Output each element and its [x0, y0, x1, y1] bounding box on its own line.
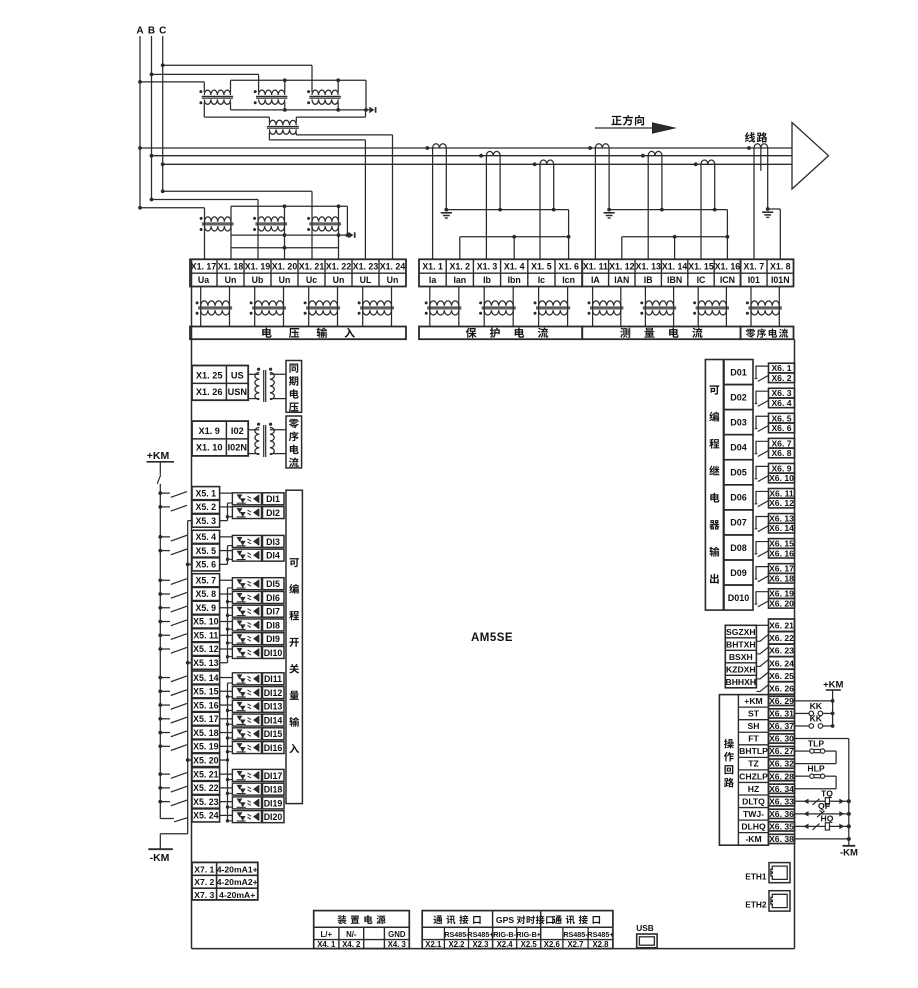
- svg-text:X1. 24: X1. 24: [380, 262, 406, 272]
- svg-text:X6. 15: X6. 15: [769, 539, 794, 549]
- svg-text:X5. 13: X5. 13: [193, 658, 219, 668]
- svg-text:X6. 38: X6. 38: [769, 834, 794, 844]
- svg-text:X6. 12: X6. 12: [769, 498, 794, 508]
- svg-text:DI9: DI9: [266, 634, 280, 644]
- svg-text:X6. 20: X6. 20: [769, 598, 794, 608]
- svg-text:FT: FT: [748, 734, 759, 744]
- svg-text:GPS: GPS: [496, 915, 514, 925]
- svg-text:X1. 5: X1. 5: [531, 262, 552, 272]
- svg-text:X7. 3: X7. 3: [194, 890, 214, 900]
- svg-text:X5. 3: X5. 3: [196, 516, 217, 526]
- svg-text:AM5SE: AM5SE: [471, 632, 513, 644]
- svg-text:X5. 15: X5. 15: [193, 687, 219, 697]
- svg-text:CHZLP: CHZLP: [739, 771, 768, 781]
- svg-text:X6. 25: X6. 25: [769, 671, 794, 681]
- svg-text:KK: KK: [810, 701, 823, 711]
- svg-text:D06: D06: [730, 493, 747, 503]
- svg-text:X1. 2: X1. 2: [450, 262, 471, 272]
- svg-text:DI1: DI1: [266, 494, 280, 504]
- svg-text:X5. 22: X5. 22: [193, 783, 219, 793]
- svg-text:X7. 2: X7. 2: [194, 877, 214, 887]
- svg-text:GND: GND: [388, 930, 406, 939]
- svg-text:DI17: DI17: [264, 771, 283, 781]
- svg-text:Ua: Ua: [198, 275, 209, 285]
- svg-text:X5. 17: X5. 17: [193, 714, 219, 724]
- svg-text:DI6: DI6: [266, 593, 280, 603]
- svg-text:DI10: DI10: [264, 648, 283, 658]
- svg-text:IA: IA: [591, 275, 600, 285]
- svg-text:X6. 28: X6. 28: [769, 771, 794, 781]
- svg-text:TZ: TZ: [748, 759, 759, 769]
- svg-text:X5. 10: X5. 10: [193, 617, 219, 627]
- svg-text:RS485-: RS485-: [563, 930, 588, 939]
- svg-text:X1. 21: X1. 21: [299, 262, 325, 272]
- svg-text:X5. 4: X5. 4: [196, 532, 217, 542]
- svg-text:X6. 8: X6. 8: [771, 448, 791, 458]
- svg-text:X6. 30: X6. 30: [769, 734, 794, 744]
- svg-text:RS485+: RS485+: [587, 930, 613, 939]
- svg-text:-KM: -KM: [745, 834, 761, 844]
- svg-text:X1. 7: X1. 7: [744, 262, 765, 272]
- svg-text:Un: Un: [279, 275, 291, 285]
- svg-text:X1. 10: X1. 10: [196, 443, 223, 453]
- svg-text:X1. 14: X1. 14: [662, 262, 688, 272]
- svg-text:-KM: -KM: [150, 852, 170, 864]
- svg-text:X1. 16: X1. 16: [715, 262, 741, 272]
- svg-text:X6. 21: X6. 21: [769, 621, 794, 631]
- svg-text:ETH1: ETH1: [745, 872, 767, 882]
- svg-text:X6. 4: X6. 4: [771, 398, 791, 408]
- svg-text:Uc: Uc: [306, 275, 317, 285]
- svg-text:+KM: +KM: [823, 680, 843, 691]
- svg-text:IC: IC: [697, 275, 706, 285]
- svg-text:D04: D04: [730, 443, 747, 453]
- svg-text:X6. 7: X6. 7: [771, 438, 791, 448]
- svg-text:I02: I02: [231, 426, 244, 436]
- svg-text:X1. 15: X1. 15: [688, 262, 714, 272]
- svg-text:DI16: DI16: [264, 743, 283, 753]
- svg-text:SH: SH: [748, 721, 760, 731]
- svg-text:BHTLP: BHTLP: [739, 746, 768, 756]
- svg-text:KK: KK: [810, 714, 823, 724]
- svg-text:X1. 6: X1. 6: [558, 262, 579, 272]
- svg-text:X6. 35: X6. 35: [769, 821, 794, 831]
- svg-text:US: US: [231, 370, 244, 380]
- svg-text:X6. 37: X6. 37: [769, 721, 794, 731]
- svg-text:X1. 22: X1. 22: [326, 262, 352, 272]
- svg-text:HLP: HLP: [807, 764, 824, 774]
- svg-text:D09: D09: [730, 568, 747, 578]
- svg-text:A: A: [136, 26, 143, 37]
- svg-text:X5. 6: X5. 6: [196, 560, 217, 570]
- svg-text:X6. 13: X6. 13: [769, 514, 794, 524]
- svg-text:B: B: [148, 26, 155, 37]
- svg-text:Un: Un: [225, 275, 237, 285]
- svg-text:BSXH: BSXH: [729, 652, 753, 662]
- svg-text:D05: D05: [730, 468, 747, 478]
- svg-text:-KM: -KM: [840, 848, 858, 859]
- svg-text:X6. 17: X6. 17: [769, 564, 794, 574]
- svg-text:Ub: Ub: [252, 275, 264, 285]
- svg-text:X1. 3: X1. 3: [477, 262, 498, 272]
- svg-text:DI20: DI20: [264, 812, 283, 822]
- svg-text:X6. 3: X6. 3: [771, 388, 791, 398]
- svg-text:X6. 6: X6. 6: [771, 423, 791, 433]
- svg-text:D010: D010: [728, 593, 750, 603]
- svg-text:4-20mA+: 4-20mA+: [219, 890, 255, 900]
- svg-text:X6. 29: X6. 29: [769, 696, 794, 706]
- svg-text:DI4: DI4: [266, 551, 280, 561]
- svg-text:DI18: DI18: [264, 785, 283, 795]
- svg-text:X6. 5: X6. 5: [771, 413, 791, 423]
- svg-text:DI15: DI15: [264, 729, 283, 739]
- svg-text:X6. 33: X6. 33: [769, 796, 794, 806]
- svg-text:X6. 36: X6. 36: [769, 809, 794, 819]
- svg-text:IB: IB: [644, 275, 653, 285]
- svg-text:X5. 5: X5. 5: [196, 546, 217, 556]
- svg-text:X5. 12: X5. 12: [193, 644, 219, 654]
- svg-text:DLHQ: DLHQ: [741, 821, 766, 831]
- svg-text:Ib: Ib: [483, 275, 491, 285]
- svg-text:HZ: HZ: [748, 784, 759, 794]
- svg-text:TQ: TQ: [821, 788, 833, 798]
- svg-text:HQ: HQ: [821, 814, 834, 824]
- svg-text:DI3: DI3: [266, 537, 280, 547]
- svg-text:KZDXH: KZDXH: [726, 665, 756, 675]
- svg-text:X6. 19: X6. 19: [769, 589, 794, 599]
- svg-text:ST: ST: [748, 709, 760, 719]
- svg-text:X6. 34: X6. 34: [769, 784, 794, 794]
- svg-text:Ian: Ian: [453, 275, 466, 285]
- svg-text:X6. 11: X6. 11: [769, 488, 794, 498]
- svg-text:DI19: DI19: [264, 798, 283, 808]
- svg-text:RIG-B-: RIG-B-: [493, 930, 516, 939]
- svg-text:X5. 1: X5. 1: [196, 488, 217, 498]
- svg-text:RIG-B+: RIG-B+: [516, 930, 541, 939]
- svg-text:X6. 18: X6. 18: [769, 573, 794, 583]
- svg-text:X5. 20: X5. 20: [193, 755, 219, 765]
- svg-text:IBN: IBN: [667, 275, 682, 285]
- svg-text:X6. 2: X6. 2: [771, 373, 791, 383]
- svg-text:X6. 23: X6. 23: [769, 646, 794, 656]
- svg-text:X1. 26: X1. 26: [196, 387, 223, 397]
- svg-text:X1. 19: X1. 19: [245, 262, 271, 272]
- svg-text:X5. 11: X5. 11: [193, 630, 218, 640]
- svg-text:TWJ-: TWJ-: [743, 809, 764, 819]
- svg-text:X5. 19: X5. 19: [193, 742, 219, 752]
- svg-text:X5. 2: X5. 2: [196, 502, 217, 512]
- svg-text:ICN: ICN: [720, 275, 735, 285]
- svg-text:+KM: +KM: [147, 450, 170, 462]
- svg-text:DI12: DI12: [264, 688, 283, 698]
- svg-text:DI11: DI11: [264, 674, 282, 684]
- svg-text:X6. 32: X6. 32: [769, 759, 794, 769]
- svg-text:D02: D02: [730, 392, 747, 402]
- svg-text:DLTQ: DLTQ: [742, 796, 765, 806]
- svg-text:Ia: Ia: [429, 275, 436, 285]
- svg-text:Icn: Icn: [562, 275, 575, 285]
- svg-text:X1. 12: X1. 12: [609, 262, 635, 272]
- svg-text:C: C: [159, 26, 166, 37]
- svg-text:BHTXH: BHTXH: [726, 640, 756, 650]
- svg-text:X1. 13: X1. 13: [635, 262, 661, 272]
- svg-text:X5. 8: X5. 8: [196, 589, 217, 599]
- svg-text:X6. 31: X6. 31: [769, 709, 794, 719]
- svg-text:X5. 9: X5. 9: [196, 603, 217, 613]
- svg-text:USN: USN: [228, 387, 248, 397]
- svg-text:X6. 27: X6. 27: [769, 746, 794, 756]
- svg-text:X1. 4: X1. 4: [504, 262, 525, 272]
- svg-text:X5. 18: X5. 18: [193, 728, 219, 738]
- svg-text:X1. 11: X1. 11: [583, 262, 608, 272]
- svg-text:4-20mA1+: 4-20mA1+: [217, 864, 258, 874]
- svg-text:Ibn: Ibn: [508, 275, 521, 285]
- svg-text:Un: Un: [333, 275, 345, 285]
- svg-text:X6. 24: X6. 24: [769, 658, 794, 668]
- svg-text:X1. 18: X1. 18: [218, 262, 244, 272]
- svg-text:DI13: DI13: [264, 702, 283, 712]
- svg-text:X1. 25: X1. 25: [196, 370, 223, 380]
- svg-text:I01N: I01N: [771, 275, 790, 285]
- svg-text:X6. 9: X6. 9: [771, 463, 791, 473]
- svg-text:D07: D07: [730, 518, 747, 528]
- svg-text:X5. 14: X5. 14: [193, 673, 219, 683]
- svg-text:+KM: +KM: [744, 696, 762, 706]
- svg-text:QF: QF: [818, 801, 830, 811]
- svg-text:RS485-: RS485-: [444, 930, 469, 939]
- svg-text:DI5: DI5: [266, 579, 280, 589]
- svg-text:X6. 1: X6. 1: [771, 363, 791, 373]
- svg-text:DI2: DI2: [266, 508, 280, 518]
- svg-text:D03: D03: [730, 417, 747, 427]
- svg-text:ETH2: ETH2: [745, 900, 767, 910]
- svg-text:X6. 16: X6. 16: [769, 548, 794, 558]
- svg-text:X6. 26: X6. 26: [769, 683, 794, 693]
- svg-text:X1. 1: X1. 1: [422, 262, 443, 272]
- svg-text:TLP: TLP: [808, 738, 824, 748]
- svg-text:N/-: N/-: [346, 930, 357, 939]
- svg-text:Ic: Ic: [538, 275, 545, 285]
- svg-text:X5. 7: X5. 7: [196, 575, 217, 585]
- svg-text:X1. 17: X1. 17: [191, 262, 217, 272]
- svg-text:D01: D01: [730, 367, 747, 377]
- svg-text:X1. 23: X1. 23: [353, 262, 379, 272]
- svg-text:X5. 21: X5. 21: [193, 769, 219, 779]
- svg-text:X5. 23: X5. 23: [193, 797, 219, 807]
- svg-text:UL: UL: [360, 275, 372, 285]
- svg-text:X1. 20: X1. 20: [272, 262, 298, 272]
- svg-text:DI8: DI8: [266, 620, 280, 630]
- svg-text:DI7: DI7: [266, 607, 280, 617]
- svg-text:X6. 14: X6. 14: [769, 523, 794, 533]
- svg-text:X1. 8: X1. 8: [770, 262, 791, 272]
- svg-text:USB: USB: [636, 923, 654, 933]
- svg-text:X6. 22: X6. 22: [769, 633, 794, 643]
- svg-text:I01: I01: [748, 275, 760, 285]
- svg-text:BHHXH: BHHXH: [726, 677, 757, 687]
- svg-text:X6. 10: X6. 10: [769, 473, 794, 483]
- svg-text:RS485+: RS485+: [467, 930, 493, 939]
- svg-text:D08: D08: [730, 543, 747, 553]
- svg-text:DI14: DI14: [264, 715, 283, 725]
- svg-text:X7. 1: X7. 1: [194, 864, 214, 874]
- svg-text:I02N: I02N: [228, 443, 248, 453]
- svg-text:L/+: L/+: [321, 930, 333, 939]
- svg-text:IAN: IAN: [614, 275, 629, 285]
- svg-text:SGZXH: SGZXH: [726, 627, 756, 637]
- svg-text:X1. 9: X1. 9: [198, 426, 219, 436]
- svg-text:4-20mA2+: 4-20mA2+: [217, 877, 258, 887]
- svg-text:X5. 16: X5. 16: [193, 700, 219, 710]
- svg-text:Un: Un: [387, 275, 399, 285]
- svg-text:X5. 24: X5. 24: [193, 811, 219, 821]
